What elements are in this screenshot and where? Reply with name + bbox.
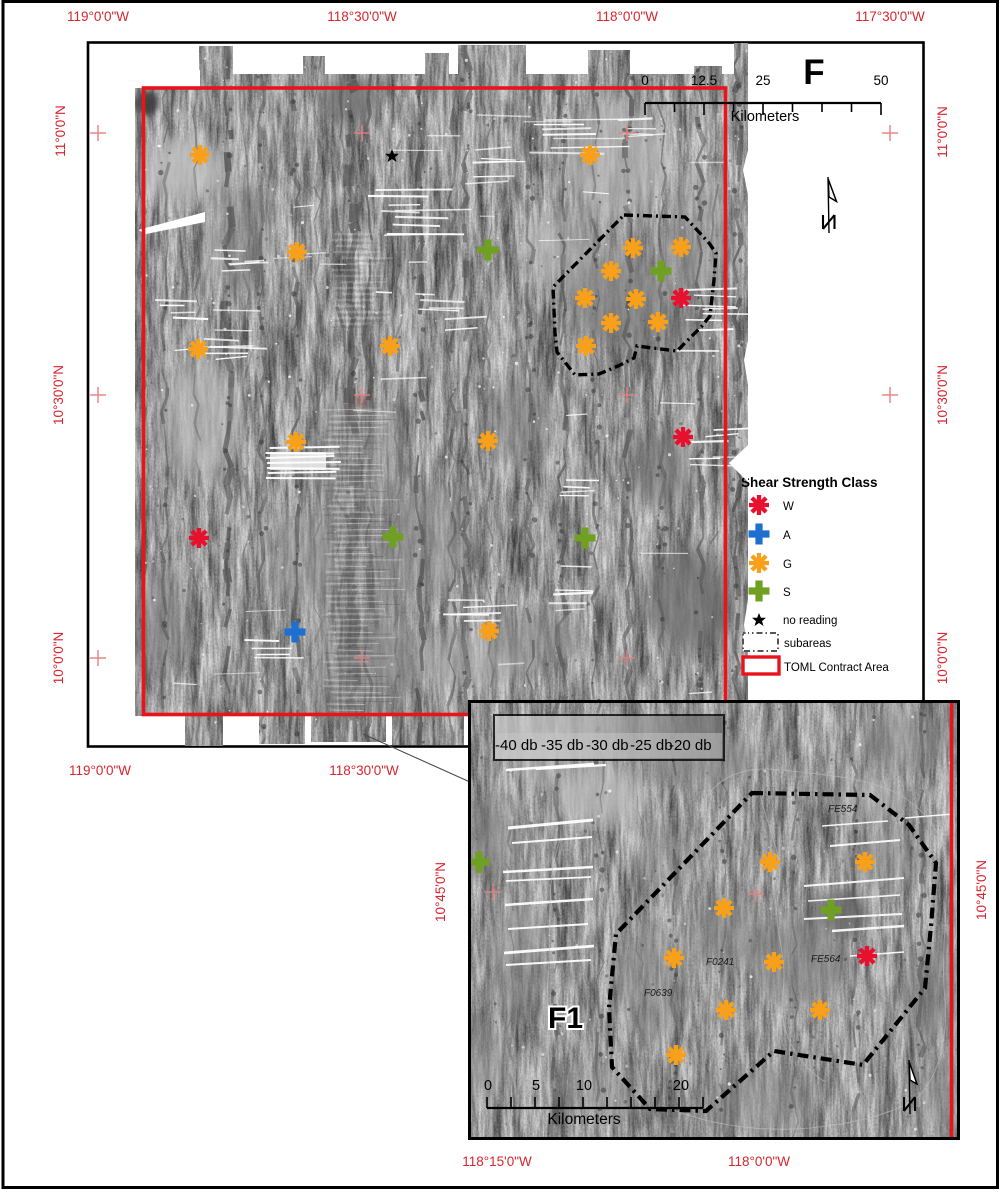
svg-text:5: 5: [532, 1078, 540, 1094]
svg-text:no reading: no reading: [783, 615, 837, 627]
svg-text:10°30'0"N: 10°30'0"N: [51, 365, 66, 425]
svg-text:10°0'0"N: 10°0'0"N: [51, 632, 66, 685]
svg-text:A: A: [783, 530, 791, 542]
svg-text:F1: F1: [548, 1002, 583, 1035]
svg-text:117°30'0"W: 117°30'0"W: [855, 9, 925, 24]
svg-text:10°30'0"N: 10°30'0"N: [935, 365, 950, 425]
svg-text:50: 50: [873, 73, 888, 88]
svg-text:Kilometers: Kilometers: [547, 1111, 620, 1128]
svg-text:118°30'0"W: 118°30'0"W: [327, 9, 397, 24]
svg-text:118°0'0"W: 118°0'0"W: [728, 1154, 790, 1169]
svg-text:118°15'0"W: 118°15'0"W: [462, 1154, 532, 1169]
svg-text:10: 10: [576, 1078, 592, 1094]
svg-text:12.5: 12.5: [691, 73, 717, 88]
svg-text:F0241: F0241: [706, 957, 734, 968]
svg-text:119°0'0"W: 119°0'0"W: [69, 763, 131, 778]
svg-text:S: S: [783, 587, 791, 599]
svg-text:TOML Contract Area: TOML Contract Area: [784, 662, 889, 674]
svg-text:W: W: [783, 501, 794, 513]
svg-text:20: 20: [673, 1078, 689, 1094]
svg-text:10°45'0"N: 10°45'0"N: [433, 862, 448, 922]
svg-text:11°0'0"N: 11°0'0"N: [935, 106, 950, 158]
svg-text:0: 0: [484, 1078, 492, 1094]
svg-text:25: 25: [755, 73, 770, 88]
svg-text:118°30'0"W: 118°30'0"W: [329, 763, 399, 778]
svg-text:119°0'0"W: 119°0'0"W: [67, 9, 129, 24]
svg-text:Kilometers: Kilometers: [731, 109, 800, 125]
svg-text:10°0'0"N: 10°0'0"N: [935, 632, 950, 685]
svg-text:FE564: FE564: [811, 954, 841, 965]
svg-text:-25 db: -25 db: [630, 737, 673, 754]
svg-text:FE554: FE554: [828, 804, 858, 815]
svg-text:0: 0: [641, 73, 649, 88]
svg-text:Shear Strength Class: Shear Strength Class: [741, 475, 878, 490]
svg-text:-40 db: -40 db: [495, 737, 538, 754]
svg-text:-20 db: -20 db: [669, 737, 712, 754]
svg-text:subareas: subareas: [784, 638, 832, 650]
svg-text:G: G: [783, 559, 792, 571]
svg-text:F: F: [803, 53, 824, 92]
svg-text:F0639: F0639: [644, 988, 673, 999]
svg-text:11°0'0"N: 11°0'0"N: [53, 105, 68, 157]
svg-text:-30 db: -30 db: [586, 737, 629, 754]
svg-text:10°45'0"N: 10°45'0"N: [974, 860, 989, 920]
svg-text:-35 db: -35 db: [541, 737, 584, 754]
svg-text:118°0'0"W: 118°0'0"W: [596, 9, 658, 24]
